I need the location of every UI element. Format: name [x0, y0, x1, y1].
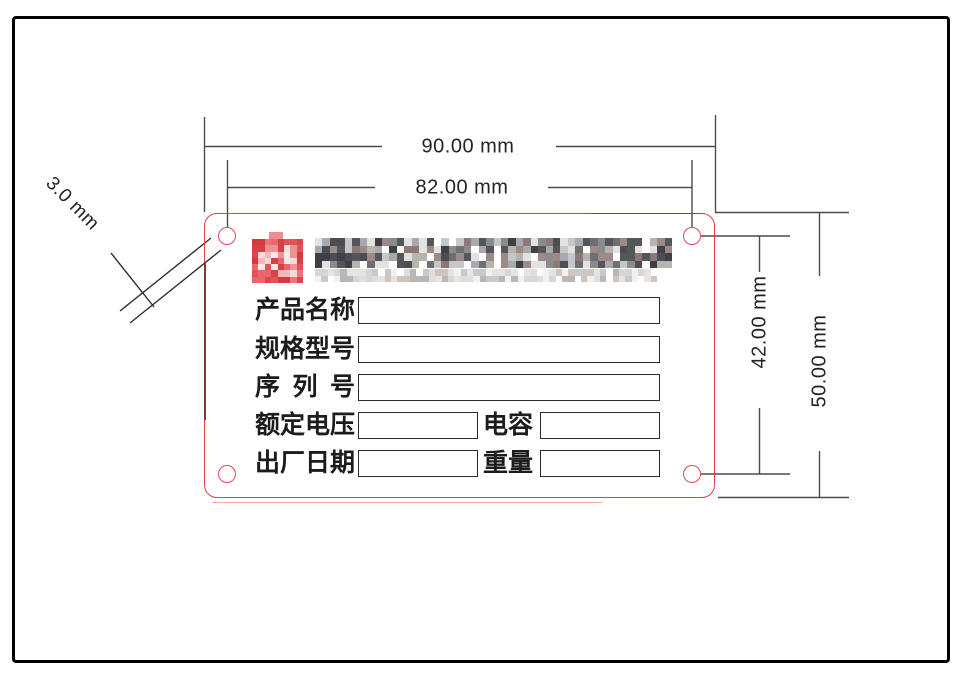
dimension-hole-span-vertical: 42.00 mm — [749, 276, 772, 369]
dimension-plate-width: 90.00 mm — [422, 136, 515, 159]
mounting-hole-top-right — [683, 227, 701, 245]
nameplate-outline-shadow-bottom — [212, 502, 602, 503]
field-label-weight: 重量 — [483, 449, 533, 478]
mounting-hole-top-left — [218, 227, 236, 245]
field-label-manufacture-date: 出厂日期 — [255, 449, 355, 478]
company-subtitle-redacted — [315, 269, 657, 282]
company-name-redacted — [315, 238, 672, 268]
mounting-hole-bottom-right — [683, 465, 701, 483]
field-label-serial-number: 序列号 — [255, 373, 355, 402]
dimension-plate-height: 50.00 mm — [809, 315, 832, 408]
manufacture-date-value-box — [358, 450, 478, 477]
field-label-rated-voltage: 额定电压 — [255, 411, 355, 440]
nameplate-drawing-sheet: 90.00 mm 82.00 mm 50.00 mm 42.00 mm 3.0 … — [0, 0, 960, 678]
rated-voltage-value-box — [358, 412, 478, 439]
serial-number-value-box — [358, 374, 660, 401]
nameplate-outline-accent-top — [585, 213, 703, 215]
dimension-hole-span-horizontal: 82.00 mm — [416, 177, 509, 200]
capacitance-value-box — [540, 412, 660, 439]
mounting-hole-bottom-left — [218, 465, 236, 483]
field-label-spec-model: 规格型号 — [255, 335, 355, 364]
weight-value-box — [540, 450, 660, 477]
company-logo-redacted — [252, 239, 303, 283]
spec-model-value-box — [358, 336, 660, 363]
nameplate-outline-accent-left — [204, 262, 206, 420]
product-name-value-box — [358, 297, 660, 324]
field-label-capacitance: 电容 — [483, 411, 533, 440]
field-label-product-name: 产品名称 — [255, 296, 355, 325]
